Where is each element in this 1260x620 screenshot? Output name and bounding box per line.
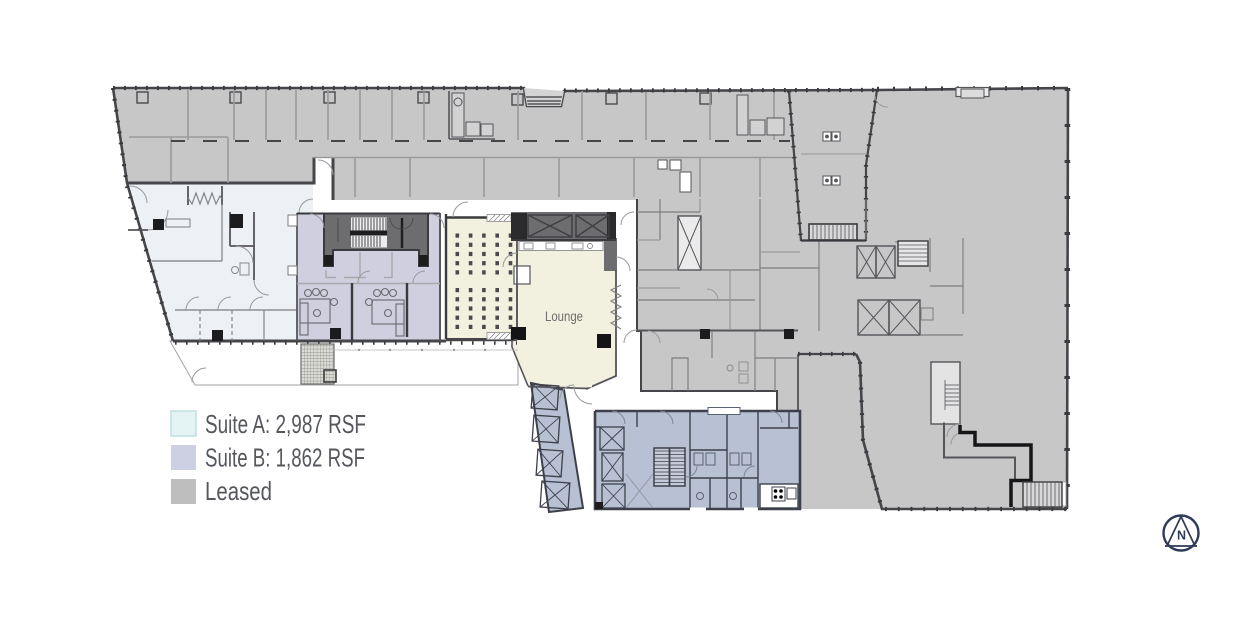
svg-text:N: N [1177, 529, 1186, 543]
svg-text:Suite B: 1,862 RSF: Suite B: 1,862 RSF [205, 443, 365, 473]
svg-text:Lounge: Lounge [545, 309, 583, 324]
svg-text:Suite A: 2,987 RSF: Suite A: 2,987 RSF [205, 409, 366, 439]
svg-text:Leased: Leased [205, 476, 272, 506]
